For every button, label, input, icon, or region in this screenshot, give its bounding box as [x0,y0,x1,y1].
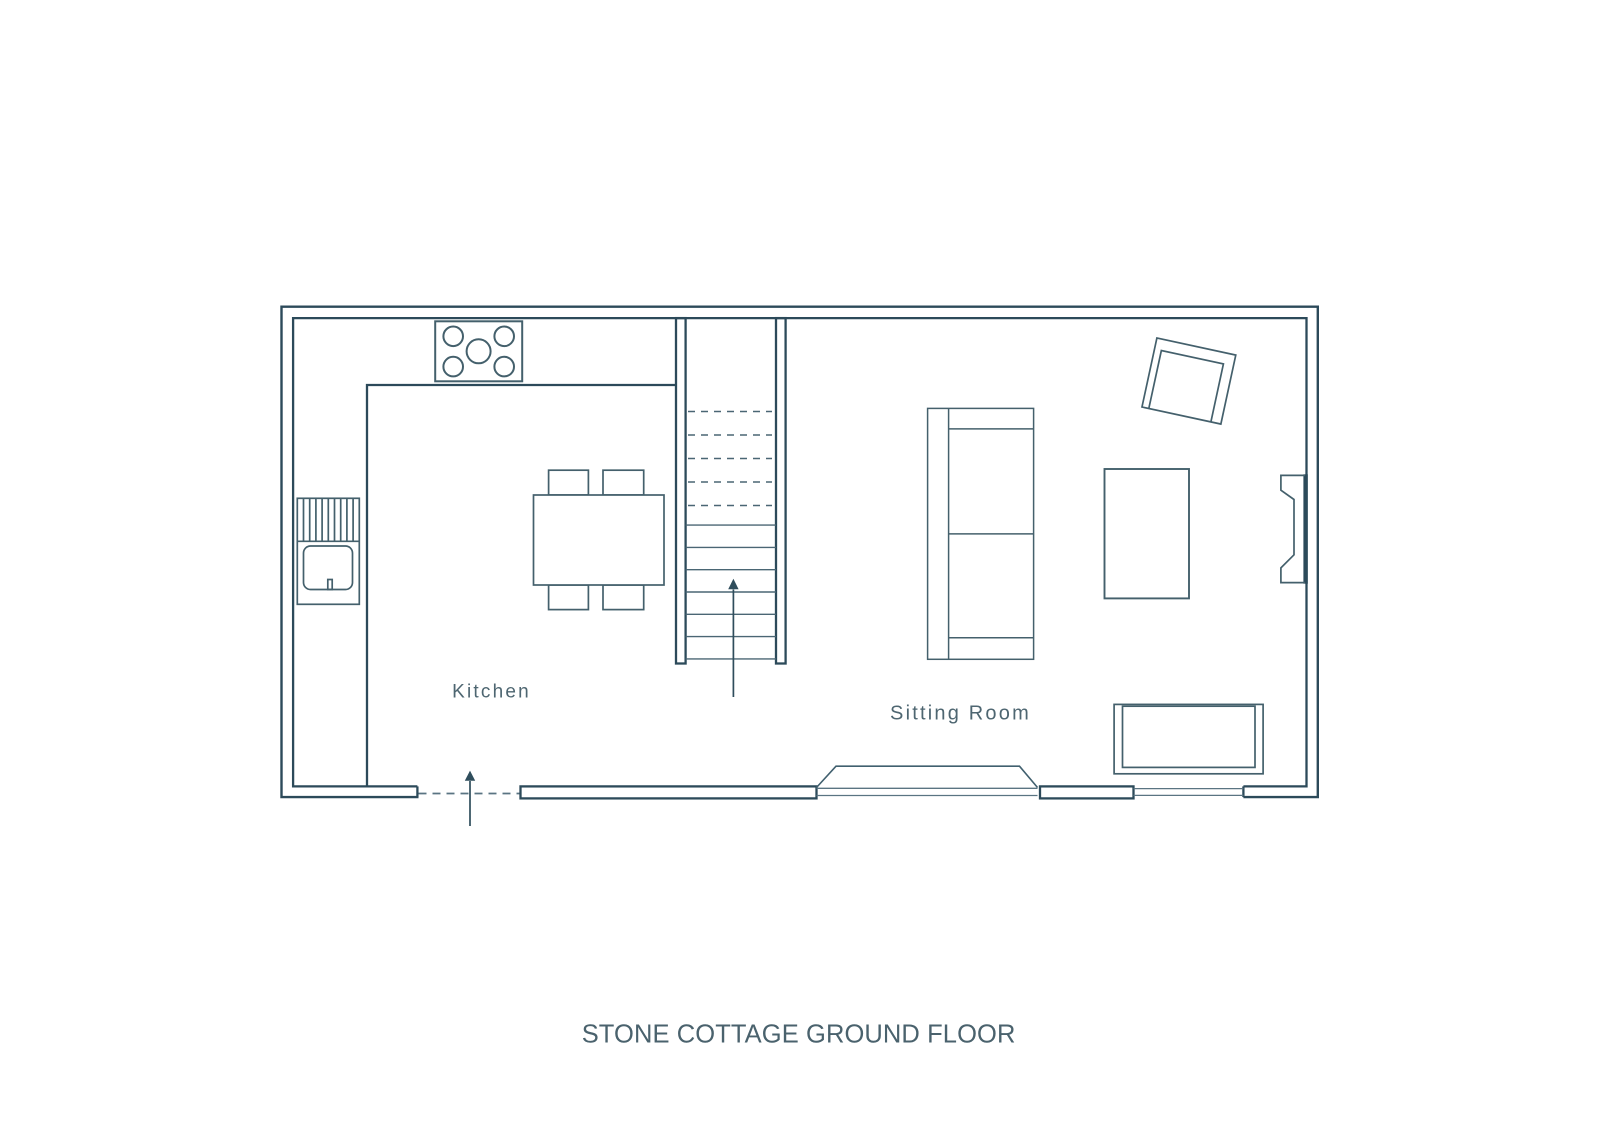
svg-text:Kitchen: Kitchen [452,682,531,703]
svg-text:Sitting Room: Sitting Room [890,703,1031,725]
svg-text:STONE COTTAGE GROUND FLOOR: STONE COTTAGE GROUND FLOOR [582,1021,1016,1049]
